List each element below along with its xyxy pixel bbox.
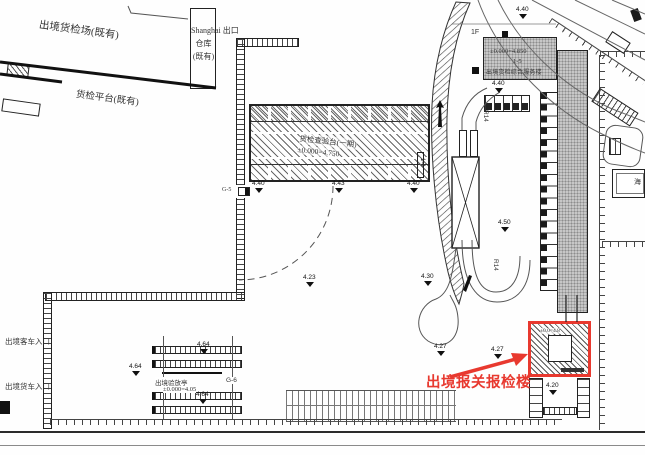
road-edge-bottom-2 [0, 445, 645, 446]
spot-elevation: 4.30 [421, 273, 434, 286]
elevation-triangle [255, 188, 263, 193]
customs-building-core [548, 335, 572, 362]
radius-label-top: R14 [482, 110, 489, 122]
spot-elevation: 4.64 [129, 363, 142, 376]
fence-bottom-ticks [50, 419, 562, 425]
offsite-loop-road [601, 124, 644, 169]
elevation-triangle [437, 351, 445, 356]
spot-elevation: 4.50 [498, 219, 511, 232]
service-building-wing-strip [557, 50, 588, 313]
spot-elevation: 4.64 [197, 341, 210, 354]
annotation-arrow-head [511, 353, 528, 366]
roof-access-block-1 [502, 31, 508, 37]
customs-building-bar [561, 368, 584, 372]
spot-elevation: 4.64 [196, 391, 209, 404]
south-canopy-left-cells [529, 378, 543, 418]
elevation-triangle [424, 281, 432, 286]
existing-platform-label: 货检平台(既有) [75, 86, 140, 108]
warehouse-label-l2: 仓库 [196, 39, 212, 48]
annotation-building-label: 出境报关报检楼 [426, 371, 531, 392]
existing-yard-label: 出境货检场(既有) [38, 17, 120, 42]
elevation-triangle [335, 188, 343, 193]
elevation-triangle [306, 282, 314, 287]
weighbridge [452, 157, 479, 248]
platform-bottom-columns [251, 164, 428, 180]
offsite-road-3 [612, 0, 645, 14]
radius-label-bottom: R14 [492, 259, 499, 271]
boundary-wall-south-horizontal [45, 292, 245, 301]
platform-gap-line-upper [251, 132, 428, 134]
gate-label: G-5 [222, 187, 231, 193]
road-edge-bottom-1 [0, 431, 645, 433]
customs-building-elevation: ±0.0=4.8 [540, 328, 560, 334]
elevation-triangle [519, 14, 527, 19]
corner-dark-block [0, 401, 10, 414]
site-plan-drawing: Shanghai 出口 仓库 (既有) 出境货检场(既有) 货检平台(既有) G… [0, 0, 645, 455]
roof-access-block-2 [472, 67, 479, 74]
loop-teardrop [419, 248, 458, 345]
platform-top-columns [251, 106, 428, 122]
spot-elevation: 4.40 [252, 180, 265, 193]
boundary-wall-west-vertical [43, 292, 52, 429]
canopy-island [162, 372, 222, 374]
canopy-bar [152, 406, 242, 414]
yard-dashed-arc [239, 186, 333, 280]
south-canopy-steps [543, 407, 577, 415]
customs-building-highlight-box: ±0.0=4.8 [528, 321, 591, 377]
export-warehouse-label: Shanghai 出口 仓库 (既有) [191, 24, 216, 63]
spot-elevation: 4.40 [516, 6, 529, 19]
elevation-triangle [132, 371, 140, 376]
boundary-wall-top-stub [236, 38, 299, 47]
checkpoint-ref: G-6 [226, 377, 237, 384]
inspection-booth-column-caps [541, 93, 547, 290]
elevation-triangle [501, 227, 509, 232]
elevation-triangle [200, 349, 208, 354]
service-building-code: 1-5 [513, 58, 522, 65]
service-building-floor-label: 1F [471, 29, 479, 36]
spot-elevation: 4.27 [434, 343, 447, 356]
passenger-entrance-label: 出境客车入口 [5, 336, 50, 347]
warehouse-leader-line [128, 6, 188, 19]
elevation-triangle [494, 354, 502, 359]
loop-outer-u [462, 240, 530, 302]
cargo-entrance-label: 出境货车入口 [5, 381, 50, 392]
service-building-name: 出境货检综合服务楼 [486, 67, 542, 76]
parked-vehicle-outline [1, 98, 40, 116]
kiosk-row-fills [486, 103, 529, 110]
platform-edge-line-a [0, 62, 216, 88]
gate-box-fill [245, 188, 249, 195]
service-building-elevation: ±0.000=4.850 [490, 48, 526, 55]
right-edge-room-label: 海 [634, 177, 641, 187]
toll-booth-2 [470, 130, 478, 157]
elevation-triangle [199, 399, 207, 404]
parking-mid-line [286, 405, 456, 406]
fence-east-mid-branch [602, 241, 645, 247]
parking-stalls [286, 390, 456, 422]
boundary-wall-east-vertical [236, 38, 245, 299]
spot-elevation: 4.40 [492, 80, 505, 93]
elevation-triangle [495, 88, 503, 93]
weighbridge-diag-1 [452, 157, 479, 248]
ramp-code-label: 1-4 [419, 158, 425, 167]
platform-gap-line-lower [251, 157, 428, 159]
south-canopy-right-cells [577, 378, 590, 418]
offsite-dark-block [630, 8, 642, 22]
elevation-triangle [549, 390, 557, 395]
warehouse-label-l1: 出口 [223, 26, 239, 35]
road-arrow-north [436, 100, 444, 127]
weighbridge-diag-2 [452, 157, 479, 248]
spot-elevation: 4.23 [303, 274, 316, 287]
offsite-loop-steps [609, 138, 621, 155]
spot-elevation: 4.40 [407, 180, 420, 193]
dock-leveler-hatch [6, 63, 29, 79]
spot-elevation: 4.20 [546, 382, 559, 395]
toll-booth-1 [459, 130, 467, 157]
checkpoint-elevation: ±0.000=4.05 [163, 386, 196, 393]
spot-elevation: 4.27 [491, 346, 504, 359]
elevation-triangle [410, 188, 418, 193]
warehouse-label-l3: (既有) [193, 52, 214, 61]
spot-elevation: 4.43 [332, 180, 345, 193]
road-arrow-south [463, 275, 472, 292]
canopy-bar [152, 360, 242, 368]
